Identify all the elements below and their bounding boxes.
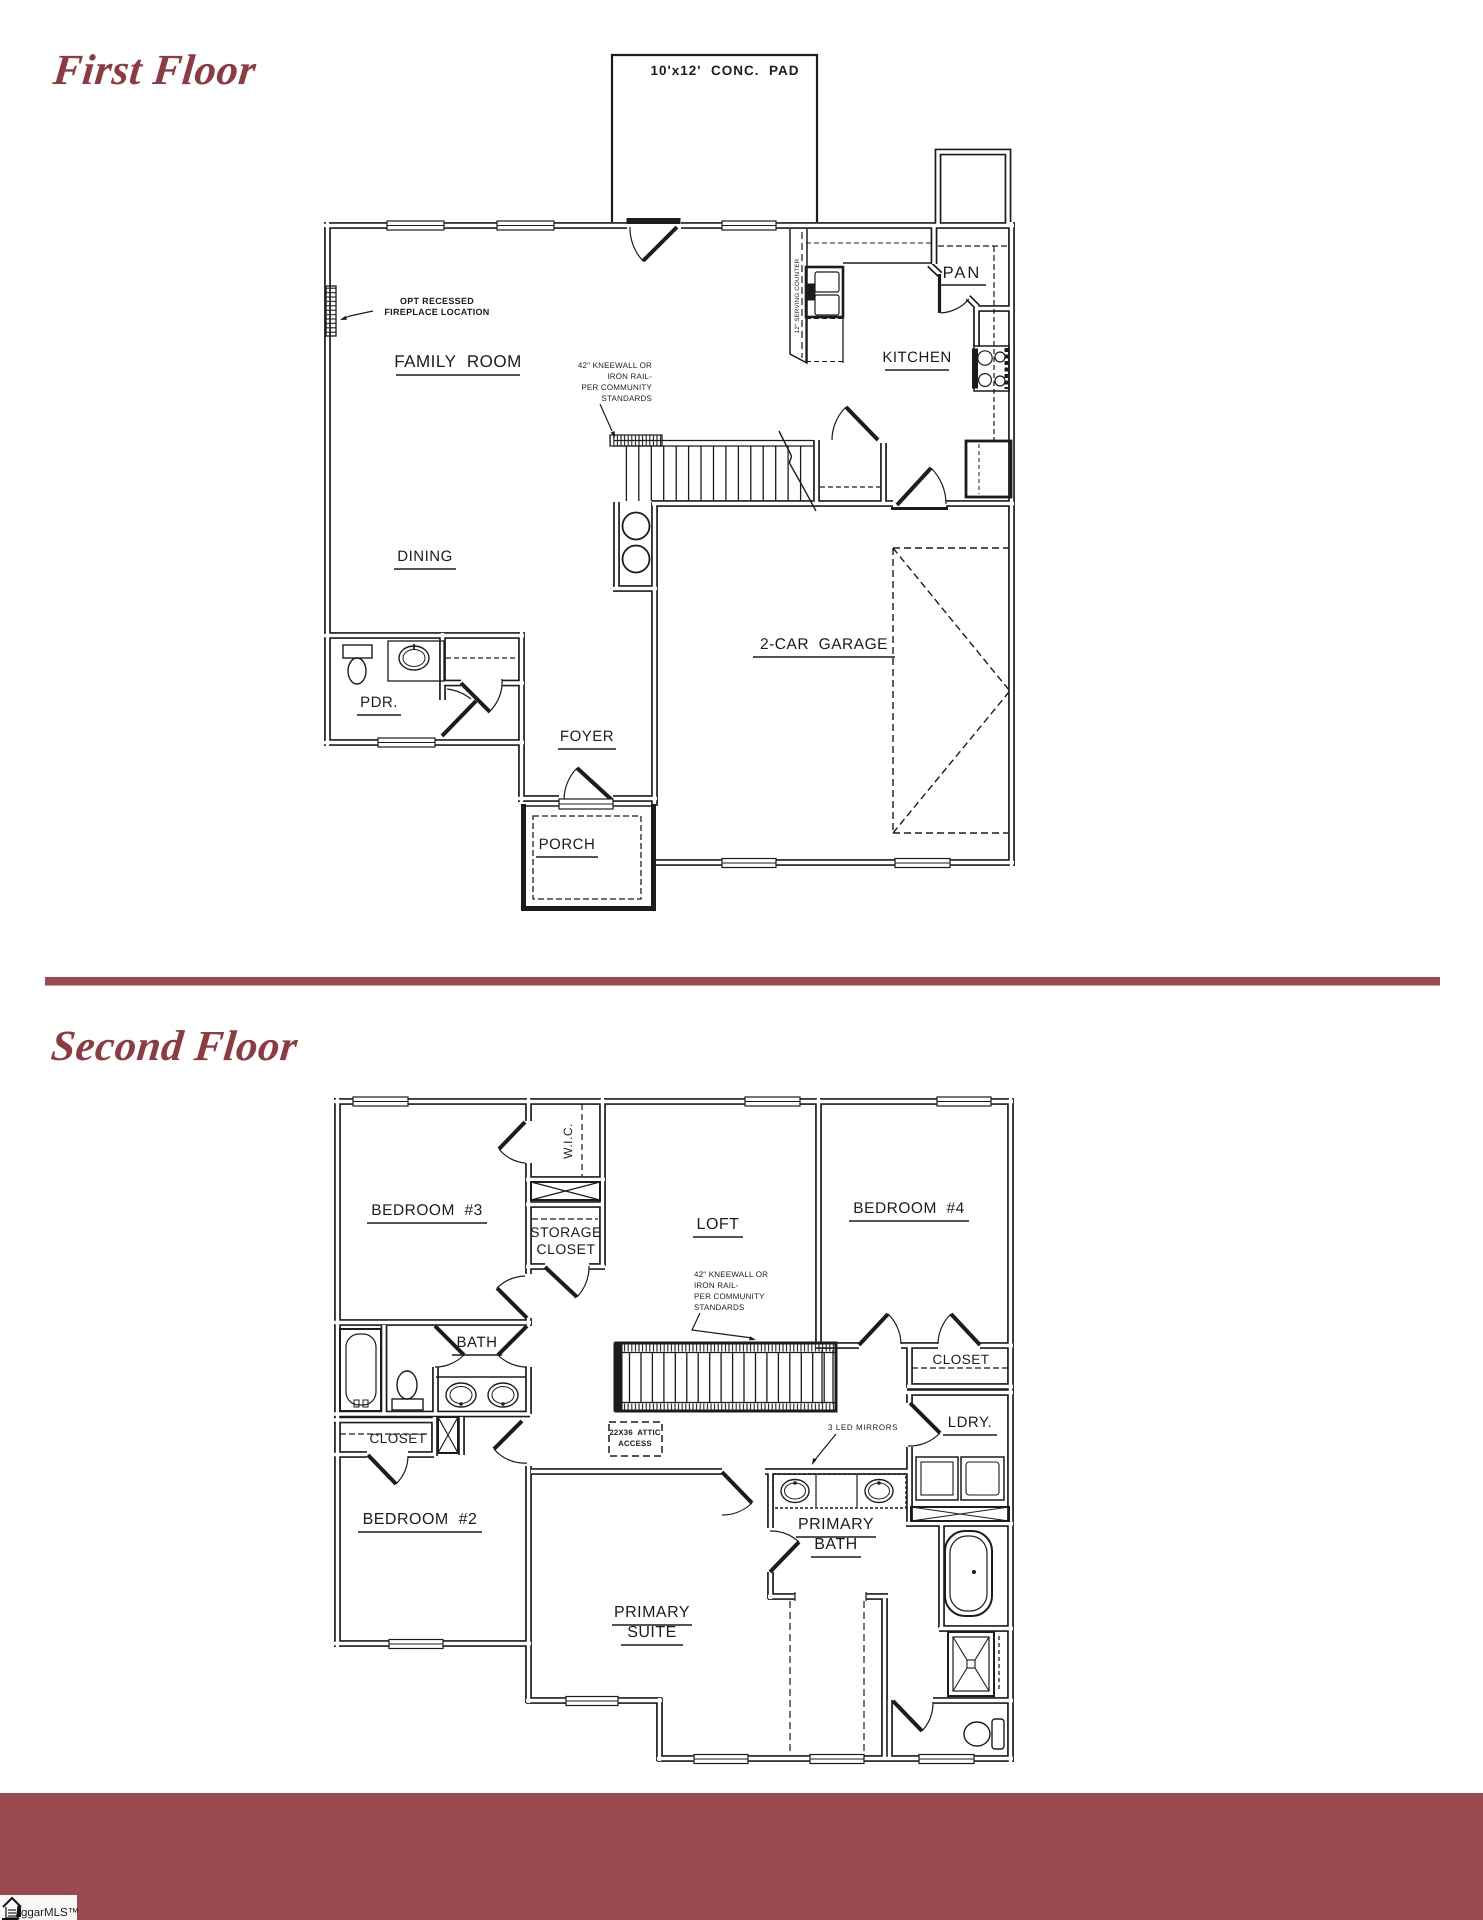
svg-text:10'x12' CONC. PAD: 10'x12' CONC. PAD [651, 63, 800, 78]
svg-text:42" KNEEWALL OR: 42" KNEEWALL OR [694, 1270, 768, 1279]
svg-text:2-CAR GARAGE: 2-CAR GARAGE [760, 636, 888, 653]
svg-text:PRIMARY: PRIMARY [614, 1604, 690, 1621]
svg-text:CLOSET: CLOSET [536, 1241, 595, 1257]
svg-text:First Floor: First Floor [50, 47, 259, 94]
svg-text:IRON RAIL-: IRON RAIL- [607, 372, 652, 381]
svg-text:BATH: BATH [814, 1536, 857, 1553]
svg-text:LDRY.: LDRY. [948, 1414, 992, 1431]
svg-text:LOFT: LOFT [697, 1216, 740, 1233]
svg-text:BEDROOM #3: BEDROOM #3 [371, 1202, 482, 1219]
svg-text:PER COMMUNITY: PER COMMUNITY [694, 1292, 765, 1301]
svg-text:STORAGE: STORAGE [530, 1224, 602, 1240]
svg-text:SUITE: SUITE [627, 1624, 677, 1641]
svg-text:Second Floor: Second Floor [49, 1023, 301, 1070]
svg-text:PORCH: PORCH [539, 836, 596, 853]
svg-text:DINING: DINING [397, 548, 453, 565]
svg-text:FOYER: FOYER [560, 728, 614, 745]
svg-text:BEDROOM #4: BEDROOM #4 [853, 1200, 964, 1217]
svg-text:ggarMLS™: ggarMLS™ [21, 1907, 79, 1919]
svg-text:PER COMMUNITY: PER COMMUNITY [581, 383, 652, 392]
svg-text:IRON RAIL-: IRON RAIL- [694, 1281, 739, 1290]
svg-text:CLOSET: CLOSET [369, 1431, 426, 1446]
svg-text:OPT RECESSED: OPT RECESSED [400, 296, 474, 306]
svg-text:STANDARDS: STANDARDS [694, 1303, 745, 1312]
svg-text:W.I.C.: W.I.C. [561, 1123, 575, 1159]
svg-text:BATH: BATH [457, 1334, 498, 1351]
svg-text:STANDARDS: STANDARDS [601, 394, 652, 403]
svg-text:12" SERVING COUNTER: 12" SERVING COUNTER [794, 258, 801, 333]
svg-text:CLOSET: CLOSET [932, 1352, 989, 1367]
svg-text:PDR.: PDR. [360, 694, 398, 711]
svg-text:PAN: PAN [943, 264, 982, 282]
svg-text:PRIMARY: PRIMARY [798, 1516, 874, 1533]
svg-text:ACCESS: ACCESS [618, 1439, 652, 1448]
svg-text:KITCHEN: KITCHEN [882, 349, 951, 366]
svg-text:42" KNEEWALL OR: 42" KNEEWALL OR [578, 361, 652, 370]
svg-text:3 LED MIRRORS: 3 LED MIRRORS [828, 1423, 898, 1432]
svg-text:BEDROOM #2: BEDROOM #2 [363, 1511, 478, 1528]
svg-text:22X36 ATTIC: 22X36 ATTIC [609, 1428, 661, 1437]
svg-text:FIREPLACE LOCATION: FIREPLACE LOCATION [384, 307, 489, 317]
svg-text:FAMILY ROOM: FAMILY ROOM [394, 352, 522, 371]
